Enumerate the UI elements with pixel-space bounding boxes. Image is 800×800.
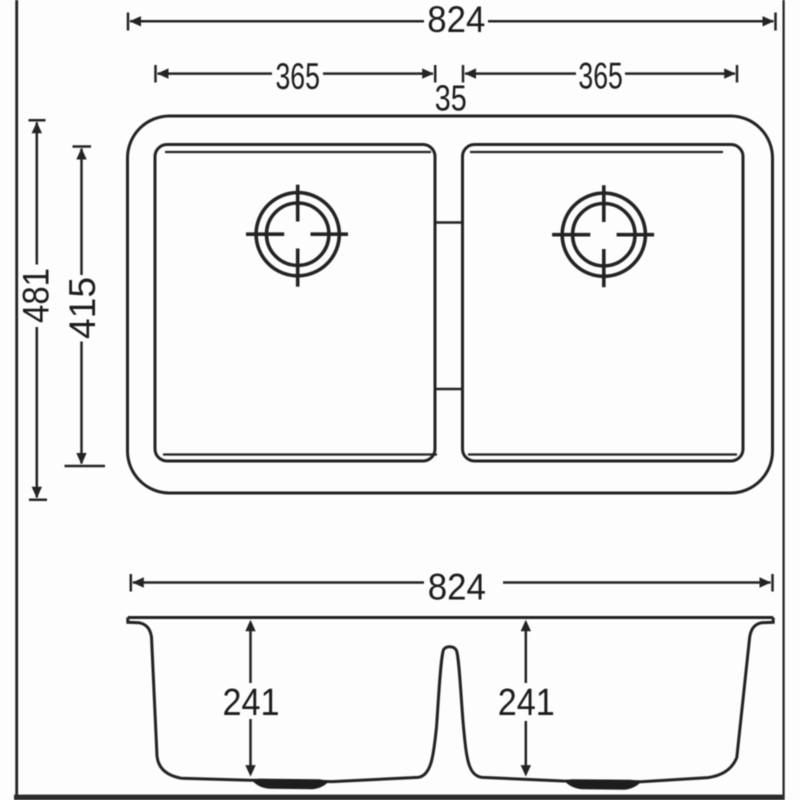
svg-text:824: 824: [428, 565, 486, 607]
svg-text:35: 35: [435, 77, 467, 118]
svg-text:365: 365: [275, 56, 319, 97]
svg-text:365: 365: [578, 55, 622, 96]
svg-text:824: 824: [427, 0, 485, 40]
svg-text:415: 415: [61, 277, 103, 339]
svg-text:241: 241: [222, 680, 279, 723]
svg-text:481: 481: [15, 268, 56, 323]
svg-text:241: 241: [498, 680, 555, 723]
